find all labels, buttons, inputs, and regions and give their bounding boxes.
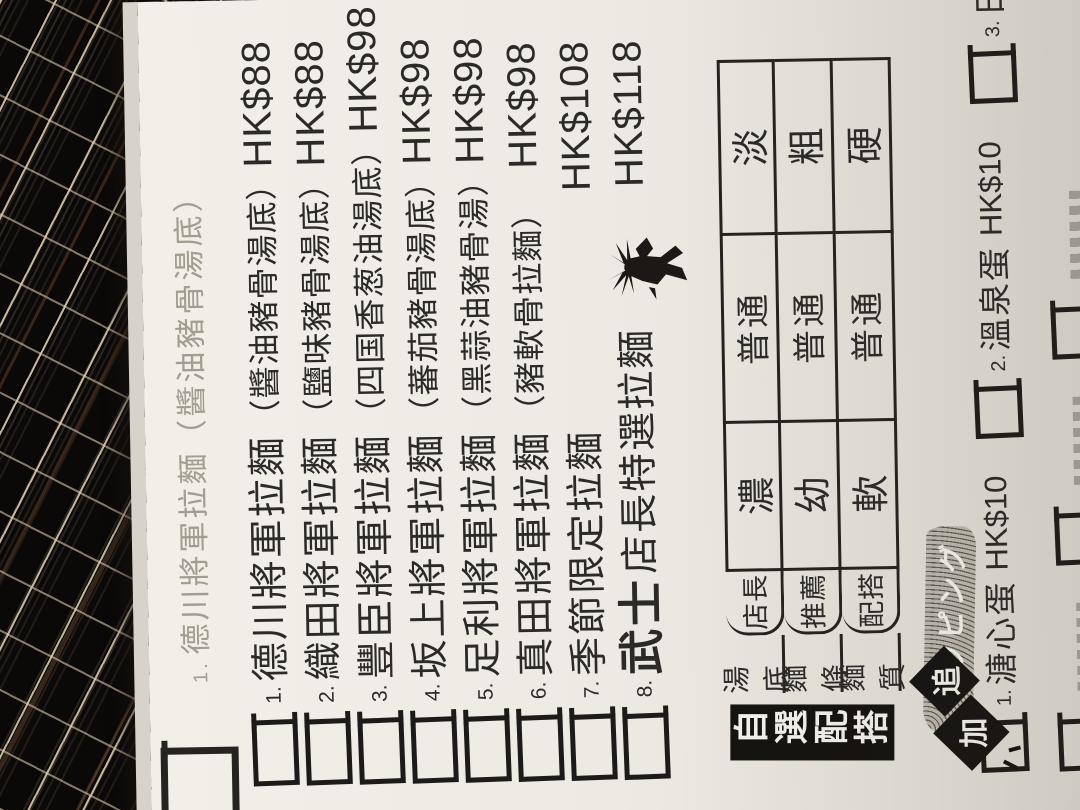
item-price: HK$98 [499,41,546,169]
item-subname: （四国香葱油湯底） [341,132,392,430]
addon-name: 日式叉燒 [961,0,1011,17]
addon-checkbox [1050,306,1080,360]
item-subname: （醬油豬骨湯底） [236,167,287,432]
options-grid: 湯底 店長 濃 普通 淡 麵條 推薦 幼 普通 粗 麵質 配搭 軟 普通 硬 [691,57,902,694]
samurai-icon [606,229,689,306]
item-name-emphasis: 武士 [604,576,672,675]
ghost-checkbox [161,746,240,810]
item-name: 德川將軍拉麵 [236,435,296,682]
item-name: 織田將軍拉麵 [289,434,349,681]
item-name: 足利將軍拉麵 [448,431,508,678]
option-value: 普通 [836,233,897,422]
item-checkbox [569,713,617,781]
option-value: 普通 [720,235,781,424]
cutoff-text-fragment [1076,603,1080,691]
item-number: 8. [633,680,657,698]
item-price: HK$98 [393,37,440,165]
option-value: 濃 [723,423,784,572]
options-banner: 自選配搭 [730,704,894,760]
option-value: 普通 [778,234,839,423]
item-checkbox [622,712,670,780]
item-checkbox [251,719,299,787]
badge-char: 追 [922,666,967,697]
cutoff-text-fragment [1069,191,1080,279]
item-checkbox [463,715,511,783]
addon-checkbox [968,50,1018,104]
recommend-cell: 配搭 [842,569,901,634]
item-price: HK$98 [446,36,493,164]
item-price: HK$108 [552,40,600,191]
addon-number: 3. [981,20,1004,37]
addon-checkbox [1054,512,1080,566]
item-name: 店長特選拉麵 [605,328,665,575]
addon-checkbox [1058,718,1080,772]
ghost-item-subname: （醬油豬骨湯底） [171,178,211,451]
ramen-item-list: 1. 德川將軍拉麵 （醬油豬骨湯底） HK$88 2. 織田將軍拉麵 （鹽味豬骨… [230,39,667,790]
item-subname: （鹽味豬骨湯底） [289,166,340,431]
ghost-item-number: 1. [190,660,212,683]
item-number: 6. [527,681,551,699]
addon-name: 溫泉蛋 [968,246,1018,352]
addon-item-partial [1049,396,1080,565]
item-price: HK$98 [340,5,387,133]
item-checkbox [516,714,564,782]
item-checkbox [357,717,405,785]
cutoff-text-fragment [1073,397,1080,485]
menu-paper-sheet: 1.德川將軍拉麵（醬油豬骨湯底） 1. 德川將軍拉麵 （醬油豬骨湯底） HK$8… [138,0,1080,810]
recommend-cell: 推薦 [784,570,843,635]
item-subname: （豬軟骨拉麵） [501,195,551,427]
item-number: 5. [474,682,498,700]
option-value: 淡 [717,59,778,236]
ghost-line: 1.德川將軍拉麵（醬油豬骨湯底） [163,178,217,683]
addons-section: トッピング 追 加 1. 溏心蛋 HK$10 2. 溫泉 [905,0,1080,810]
item-number: 2. [315,685,339,703]
addon-checkbox [974,385,1024,439]
addon-item-line-cutoff [1045,190,1080,771]
addon-item-partial [1045,190,1080,359]
option-value: 粗 [775,58,836,235]
item-price: HK$88 [234,40,281,168]
item-price: HK$88 [287,39,334,167]
item-name: 坂上將軍拉麵 [395,432,455,679]
badge-char: 加 [949,717,994,748]
item-name: 真田將軍拉麵 [501,430,561,677]
ghost-item-name: 德川將軍拉麵 [175,450,214,655]
item-price: HK$118 [605,39,653,187]
addon-item: 3. 日式叉燒 HK$10 [960,0,1014,104]
item-subname: （黑蒜油豬骨湯） [448,163,499,428]
addon-price: HK$10 [972,141,1010,236]
addon-item-partial [1052,602,1080,771]
menu-item-row: 8. 武士 店長特選拉麵 HK$118 [601,39,667,784]
addon-number: 1. [993,689,1016,706]
item-number: 1. [262,686,286,704]
option-value: 幼 [781,422,842,571]
addon-item: 2. 溫泉蛋 HK$10 [966,141,1019,438]
item-name: 豐臣將軍拉麵 [342,433,402,680]
item-subname: （蕃茄豬骨湯底） [395,164,446,429]
item-number: 4. [421,683,445,701]
item-checkbox [304,718,352,786]
option-value: 軟 [839,421,900,570]
item-number: 3. [368,684,392,702]
menu-photo: 1.德川將軍拉麵（醬油豬骨湯底） 1. 德川將軍拉麵 （醬油豬骨湯底） HK$8… [0,0,1080,810]
option-row-label: 麵質 [843,633,902,692]
addon-number: 2. [987,355,1010,372]
item-number: 7. [580,681,604,699]
option-value: 硬 [833,57,894,234]
addon-name: 溏心蛋 [974,580,1024,686]
options-table-section: 自選配搭 湯底 店長 濃 普通 淡 麵條 推薦 幼 普通 粗 麵質 配搭 軟 普… [690,29,915,773]
addon-price: HK$10 [978,475,1016,570]
recommend-cell: 店長 [726,571,785,636]
item-checkbox [410,716,458,784]
